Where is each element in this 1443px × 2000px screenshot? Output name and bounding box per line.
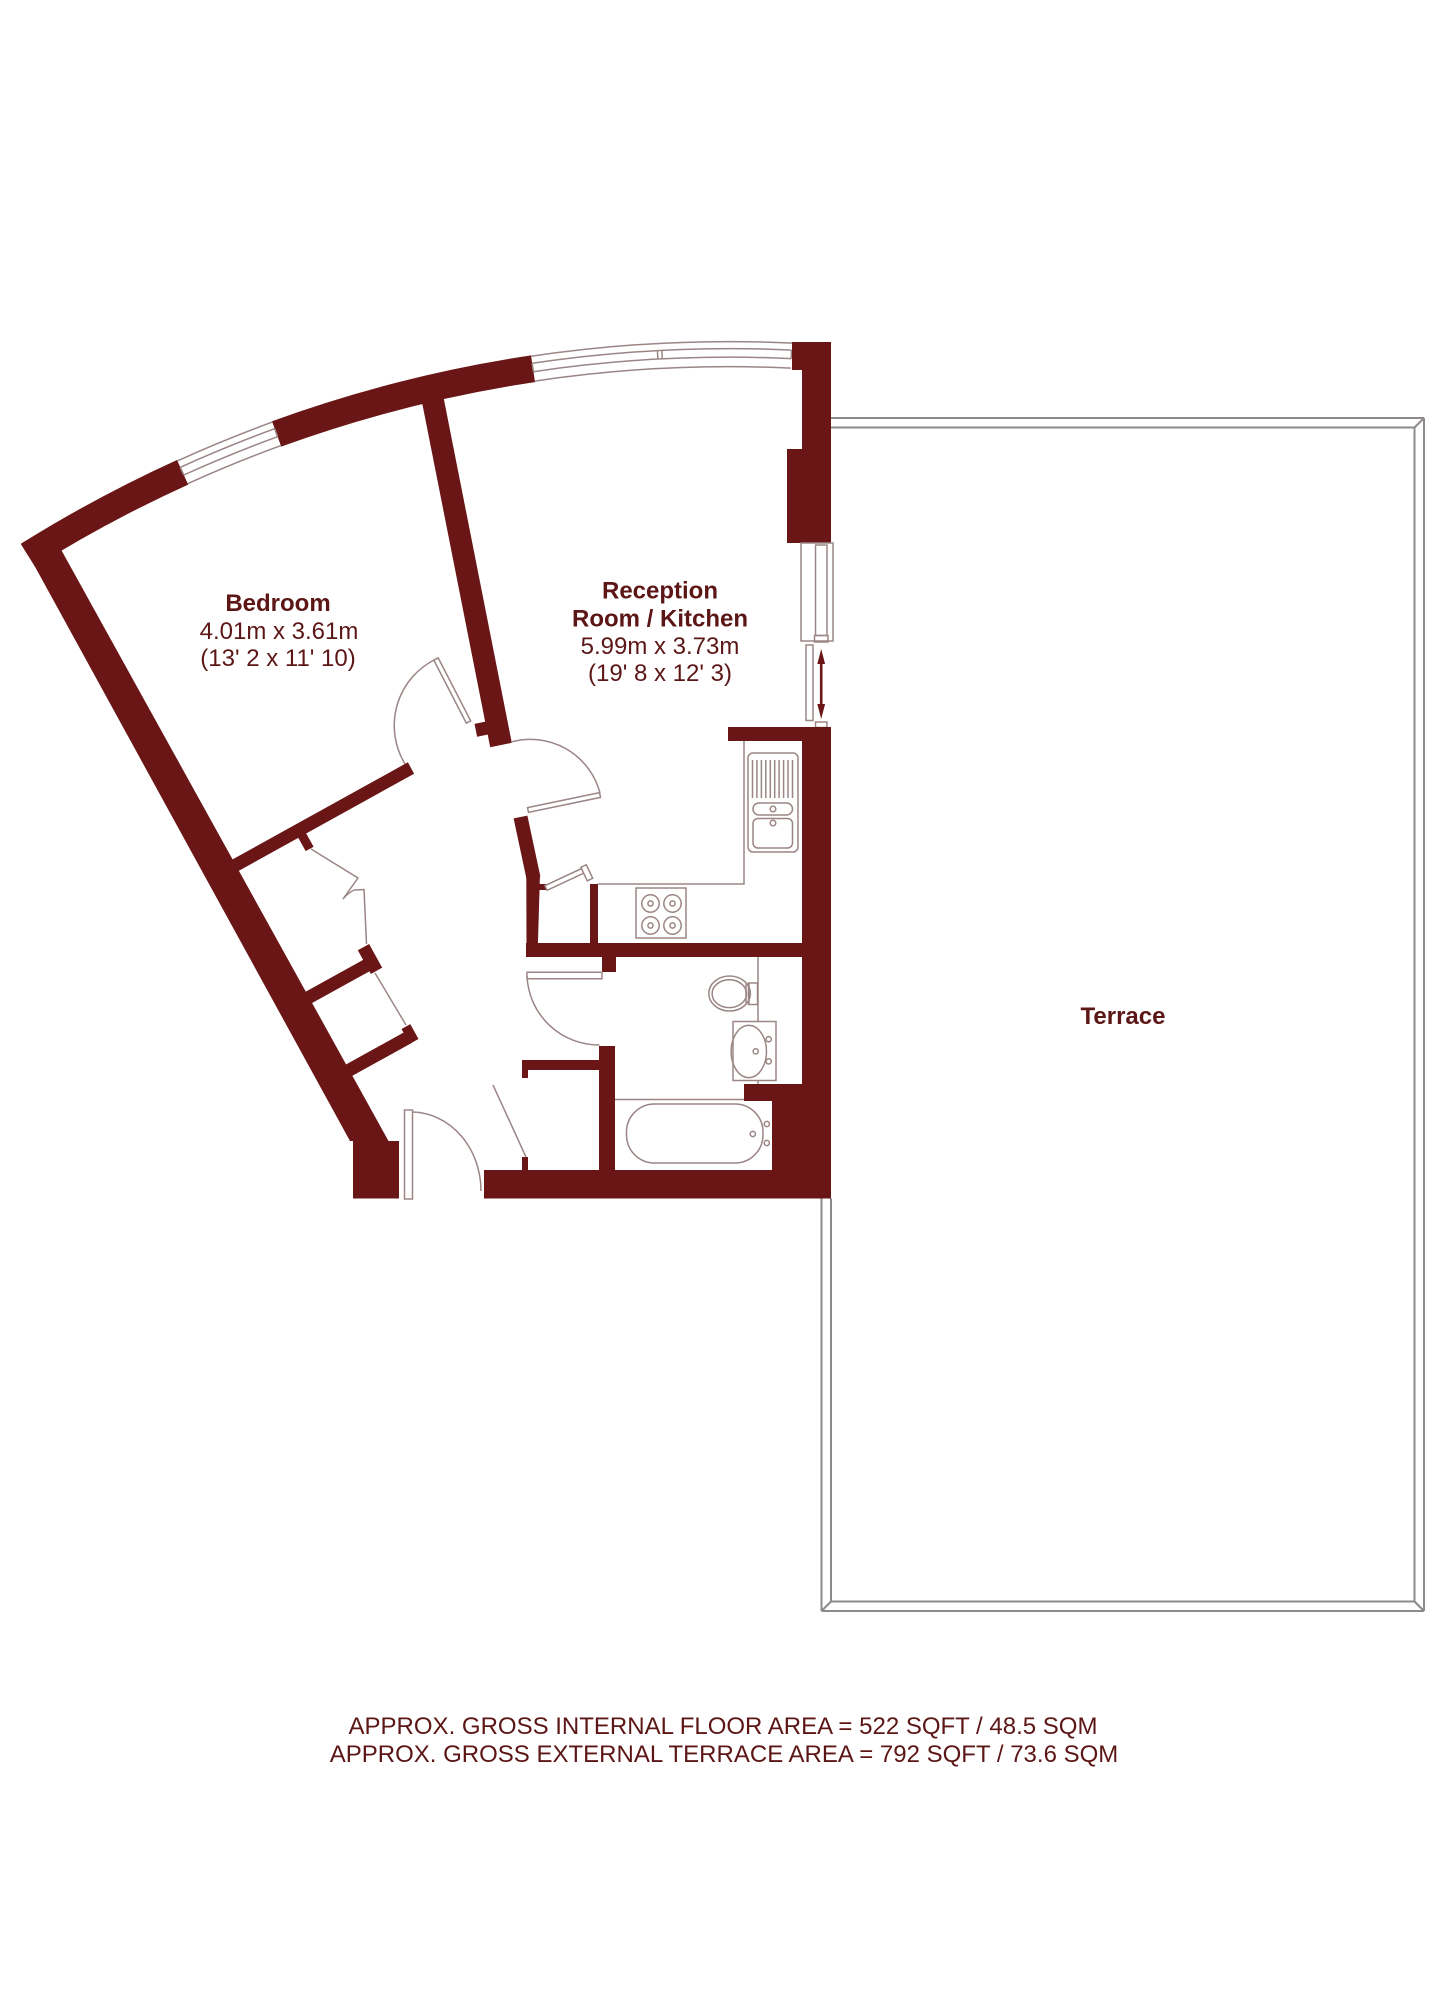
svg-text:(13' 2 x 11' 10): (13' 2 x 11' 10) — [200, 645, 355, 672]
svg-text:Bedroom: Bedroom — [225, 590, 330, 617]
svg-text:APPROX. GROSS EXTERNAL TERRACE: APPROX. GROSS EXTERNAL TERRACE AREA = 79… — [330, 1741, 1119, 1768]
svg-text:APPROX. GROSS INTERNAL FLOOR A: APPROX. GROSS INTERNAL FLOOR AREA = 522 … — [349, 1713, 1098, 1740]
svg-text:4.01m x 3.61m: 4.01m x 3.61m — [200, 618, 359, 645]
svg-text:(19' 8 x 12' 3): (19' 8 x 12' 3) — [588, 660, 732, 687]
svg-text:Terrace: Terrace — [1081, 1003, 1166, 1030]
svg-text:Reception: Reception — [602, 578, 718, 605]
svg-text:5.99m x 3.73m: 5.99m x 3.73m — [581, 633, 740, 660]
svg-text:Room / Kitchen: Room / Kitchen — [572, 606, 748, 633]
